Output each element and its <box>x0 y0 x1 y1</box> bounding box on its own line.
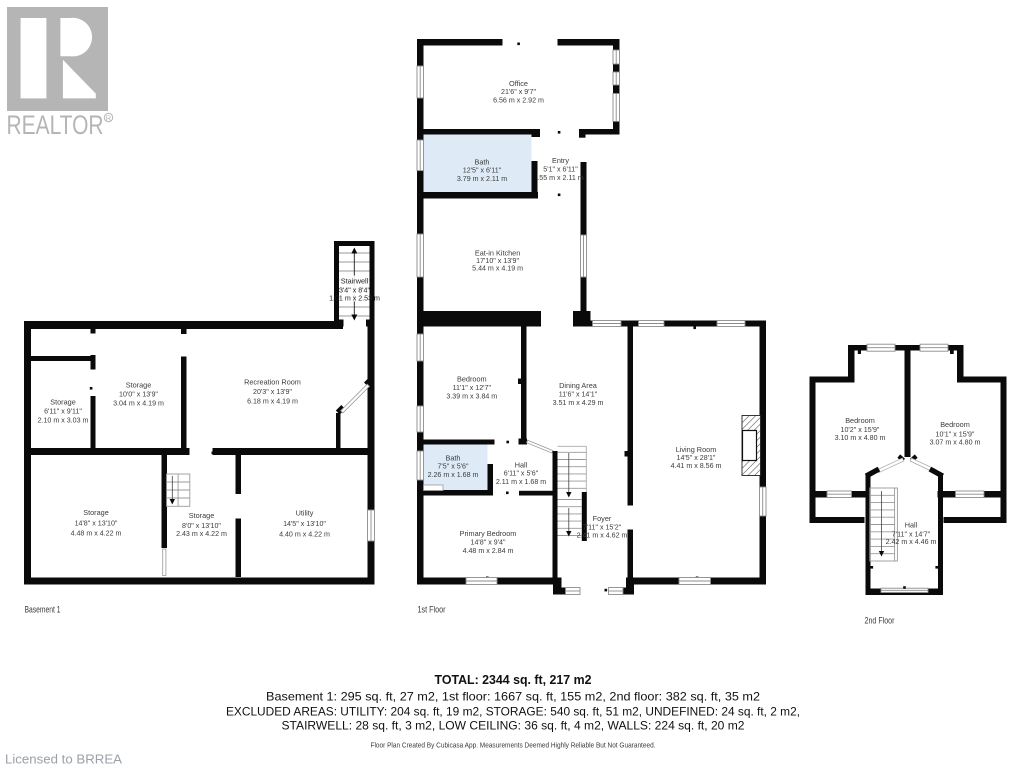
svg-text:20'3" x 13'9": 20'3" x 13'9" <box>253 388 292 396</box>
svg-text:Hall: Hall <box>515 461 528 470</box>
svg-text:10'1" x 15'9": 10'1" x 15'9" <box>936 430 975 438</box>
svg-text:3.51 m x 4.29 m: 3.51 m x 4.29 m <box>553 399 604 407</box>
svg-text:2.10 m x 3.03 m: 2.10 m x 3.03 m <box>38 416 89 424</box>
svg-text:2.42 m x 4.46 m: 2.42 m x 4.46 m <box>886 538 937 546</box>
svg-text:REALTOR: REALTOR <box>7 110 104 140</box>
svg-text:14'5" x 28'1": 14'5" x 28'1" <box>677 454 716 462</box>
svg-text:3.39 m x 3.84 m: 3.39 m x 3.84 m <box>446 393 497 401</box>
svg-text:4.40 m x 4.22 m: 4.40 m x 4.22 m <box>279 531 330 539</box>
svg-text:EXCLUDED AREAS: UTILITY: 204 s: EXCLUDED AREAS: UTILITY: 204 sq. ft, 19 … <box>226 705 800 719</box>
svg-text:Licensed to BRREA: Licensed to BRREA <box>5 752 122 767</box>
svg-text:Utility: Utility <box>296 509 314 518</box>
svg-text:Dining Area: Dining Area <box>559 381 598 390</box>
svg-text:Storage: Storage <box>83 508 109 517</box>
svg-text:2.26 m x 1.68 m: 2.26 m x 1.68 m <box>428 471 479 479</box>
svg-text:R: R <box>106 113 112 122</box>
svg-text:11'1" x 12'7": 11'1" x 12'7" <box>453 384 492 392</box>
svg-text:4.48 m x 2.84 m: 4.48 m x 2.84 m <box>463 547 514 555</box>
svg-text:TOTAL: 2344 sq. ft, 217 m2: TOTAL: 2344 sq. ft, 217 m2 <box>435 673 592 687</box>
svg-text:4.48 m x 4.22 m: 4.48 m x 4.22 m <box>71 530 122 538</box>
svg-text:Recreation Room: Recreation Room <box>244 378 301 387</box>
svg-text:2.11 m x 1.68 m: 2.11 m x 1.68 m <box>496 478 546 486</box>
svg-text:3.07 m x 4.80 m: 3.07 m x 4.80 m <box>930 439 981 447</box>
svg-text:14'8" x 9'4": 14'8" x 9'4" <box>471 539 506 547</box>
svg-text:Bedroom: Bedroom <box>845 416 875 425</box>
svg-text:5'1" x 6'11": 5'1" x 6'11" <box>543 166 578 174</box>
svg-text:11'6" x 14'1": 11'6" x 14'1" <box>559 391 598 399</box>
svg-text:Bedroom: Bedroom <box>457 375 487 384</box>
svg-text:Storage: Storage <box>189 511 215 520</box>
svg-text:7'11" x 15'2": 7'11" x 15'2" <box>583 523 622 531</box>
svg-text:12'5" x 6'11": 12'5" x 6'11" <box>463 167 502 175</box>
svg-text:Hall: Hall <box>905 521 918 530</box>
svg-text:Storage: Storage <box>50 397 76 406</box>
svg-text:Foyer: Foyer <box>593 514 612 523</box>
svg-text:Bedroom: Bedroom <box>940 420 970 429</box>
svg-text:14'8" x 13'10": 14'8" x 13'10" <box>75 519 118 527</box>
svg-text:1st Floor: 1st Floor <box>418 605 446 615</box>
svg-text:Bath: Bath <box>474 157 489 166</box>
svg-text:7'5" x 5'6": 7'5" x 5'6" <box>437 463 468 471</box>
svg-text:3.10 m x 4.80 m: 3.10 m x 4.80 m <box>835 434 886 442</box>
svg-text:3.79 m x 2.11 m: 3.79 m x 2.11 m <box>457 175 507 183</box>
svg-text:6'11" x 9'11": 6'11" x 9'11" <box>44 407 82 415</box>
svg-text:STAIRWELL: 28 sq. ft, 3 m2, LO: STAIRWELL: 28 sq. ft, 3 m2, LOW CEILING:… <box>282 719 745 733</box>
svg-text:3'4" x 8'4": 3'4" x 8'4" <box>339 287 370 295</box>
svg-text:Office: Office <box>509 79 528 88</box>
svg-text:Entry: Entry <box>552 156 569 165</box>
svg-text:Basement 1: 295 sq. ft, 27 m2,: Basement 1: 295 sq. ft, 27 m2, 1st floor… <box>266 690 760 704</box>
svg-text:Primary Bedroom: Primary Bedroom <box>460 529 517 538</box>
svg-text:2nd Floor: 2nd Floor <box>865 615 895 625</box>
svg-text:21'6" x 9'7": 21'6" x 9'7" <box>501 88 536 96</box>
svg-text:Stairwell: Stairwell <box>341 277 369 286</box>
svg-text:4.41 m x 8.56 m: 4.41 m x 8.56 m <box>671 462 722 470</box>
svg-text:.55 m x 2.11 m: .55 m x 2.11 m <box>537 174 583 182</box>
svg-text:Floor Plan Created By Cubicasa: Floor Plan Created By Cubicasa App. Meas… <box>371 742 656 749</box>
svg-text:5.44 m x 4.19 m: 5.44 m x 4.19 m <box>472 265 523 273</box>
svg-text:10'0" x 13'9": 10'0" x 13'9" <box>119 390 158 398</box>
svg-text:Bath: Bath <box>445 454 460 463</box>
svg-text:6'11" x 5'6": 6'11" x 5'6" <box>504 470 539 478</box>
svg-text:2.41 m x 4.62 m: 2.41 m x 4.62 m <box>577 532 628 540</box>
svg-text:8'0" x 13'10": 8'0" x 13'10" <box>182 522 221 530</box>
svg-text:Storage: Storage <box>126 380 152 389</box>
svg-text:14'5" x 13'10": 14'5" x 13'10" <box>283 520 326 528</box>
svg-text:Living Room: Living Room <box>676 445 717 454</box>
svg-text:2.43 m x 4.22 m: 2.43 m x 4.22 m <box>176 530 227 538</box>
svg-text:Basement 1: Basement 1 <box>25 605 61 615</box>
svg-text:6.18 m x 4.19 m: 6.18 m x 4.19 m <box>247 398 298 406</box>
svg-text:6.56 m x 2.92 m: 6.56 m x 2.92 m <box>493 96 544 104</box>
svg-text:3.04 m x 4.19 m: 3.04 m x 4.19 m <box>113 399 164 407</box>
svg-text:1.01 m x 2.53 m: 1.01 m x 2.53 m <box>329 295 380 303</box>
